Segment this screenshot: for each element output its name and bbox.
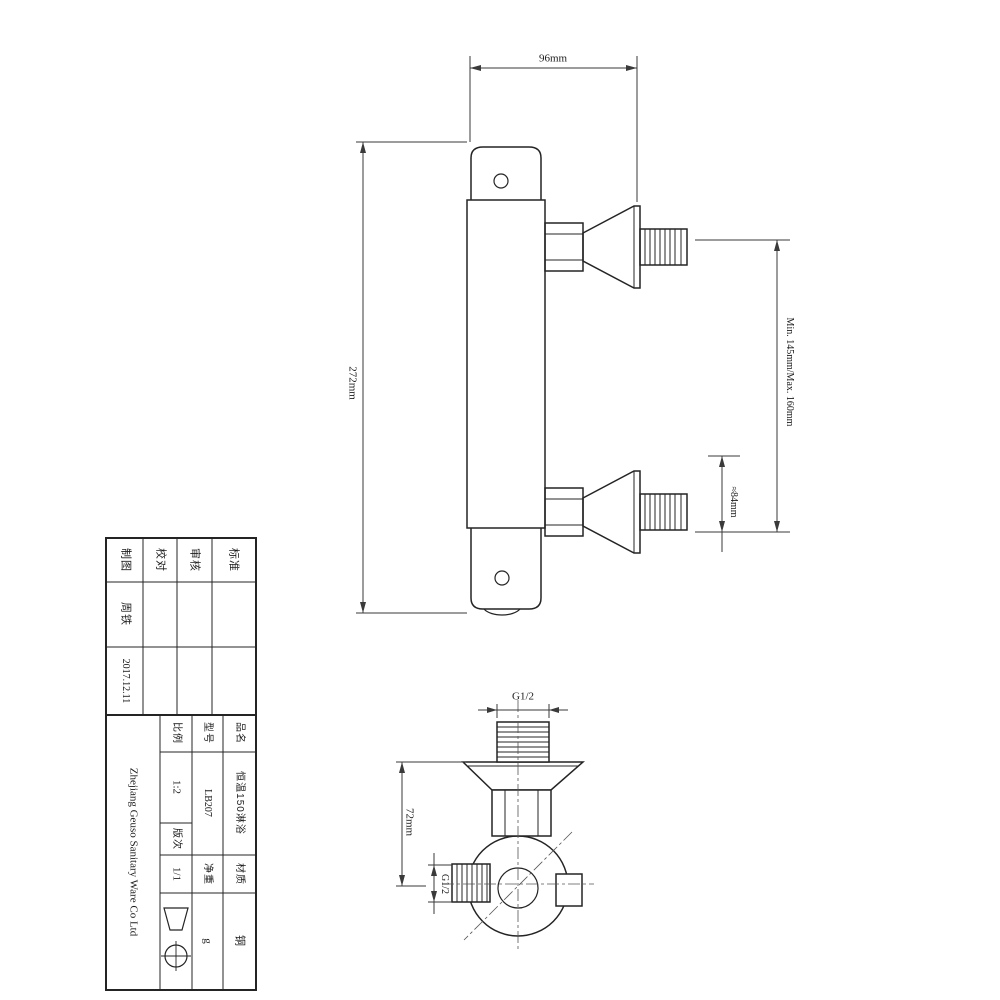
drawing-sheet: 96mm 272mm Min. 145mm/Max. 160mm ≈84mm G… — [0, 0, 1000, 1000]
dim-thread-top-label: G1/2 — [512, 692, 534, 703]
titleblock-scale-value: 1:2 — [171, 780, 182, 794]
drawing-canvas — [0, 0, 1000, 1000]
dim-thread-side-label: G1/2 — [439, 874, 449, 894]
dim-inlet-centers-label: Min. 145mm/Max. 160mm — [784, 318, 794, 427]
titleblock-weight-label: 净重 — [202, 863, 212, 885]
titleblock-revision-value: 1/1 — [171, 867, 182, 881]
titleblock-company: Zhejiang Geuso Sanitary Ware Co Ltd — [128, 768, 139, 936]
titleblock-product-value: 恒温150淋浴 — [234, 771, 244, 835]
titleblock-drawn-by: 周铁 — [120, 602, 131, 626]
titleblock-weight-value: g — [202, 938, 213, 944]
titleblock-header-standard: 标准 — [228, 548, 239, 572]
titleblock-revision-label: 版次 — [171, 828, 181, 850]
titleblock-scale-label: 比例 — [171, 722, 181, 744]
dim-width-label: 96mm — [539, 54, 567, 65]
titleblock-material-label: 材质 — [234, 863, 244, 885]
titleblock-header-reviewed: 审核 — [189, 548, 200, 572]
dim-depth-label: 72mm — [404, 808, 415, 836]
titleblock-date: 2017.12.11 — [120, 659, 130, 704]
titleblock-material-value: 铜 — [234, 935, 245, 947]
titleblock-model-label: 型号 — [202, 722, 212, 744]
titleblock-product-label: 品名 — [234, 722, 244, 744]
dim-offset-label: ≈84mm — [728, 486, 738, 517]
dim-height-label: 272mm — [347, 366, 358, 400]
titleblock-header-checked: 校对 — [155, 548, 166, 572]
titleblock-header-drawn: 制图 — [120, 548, 131, 572]
titleblock-model-value: LB207 — [202, 789, 212, 817]
